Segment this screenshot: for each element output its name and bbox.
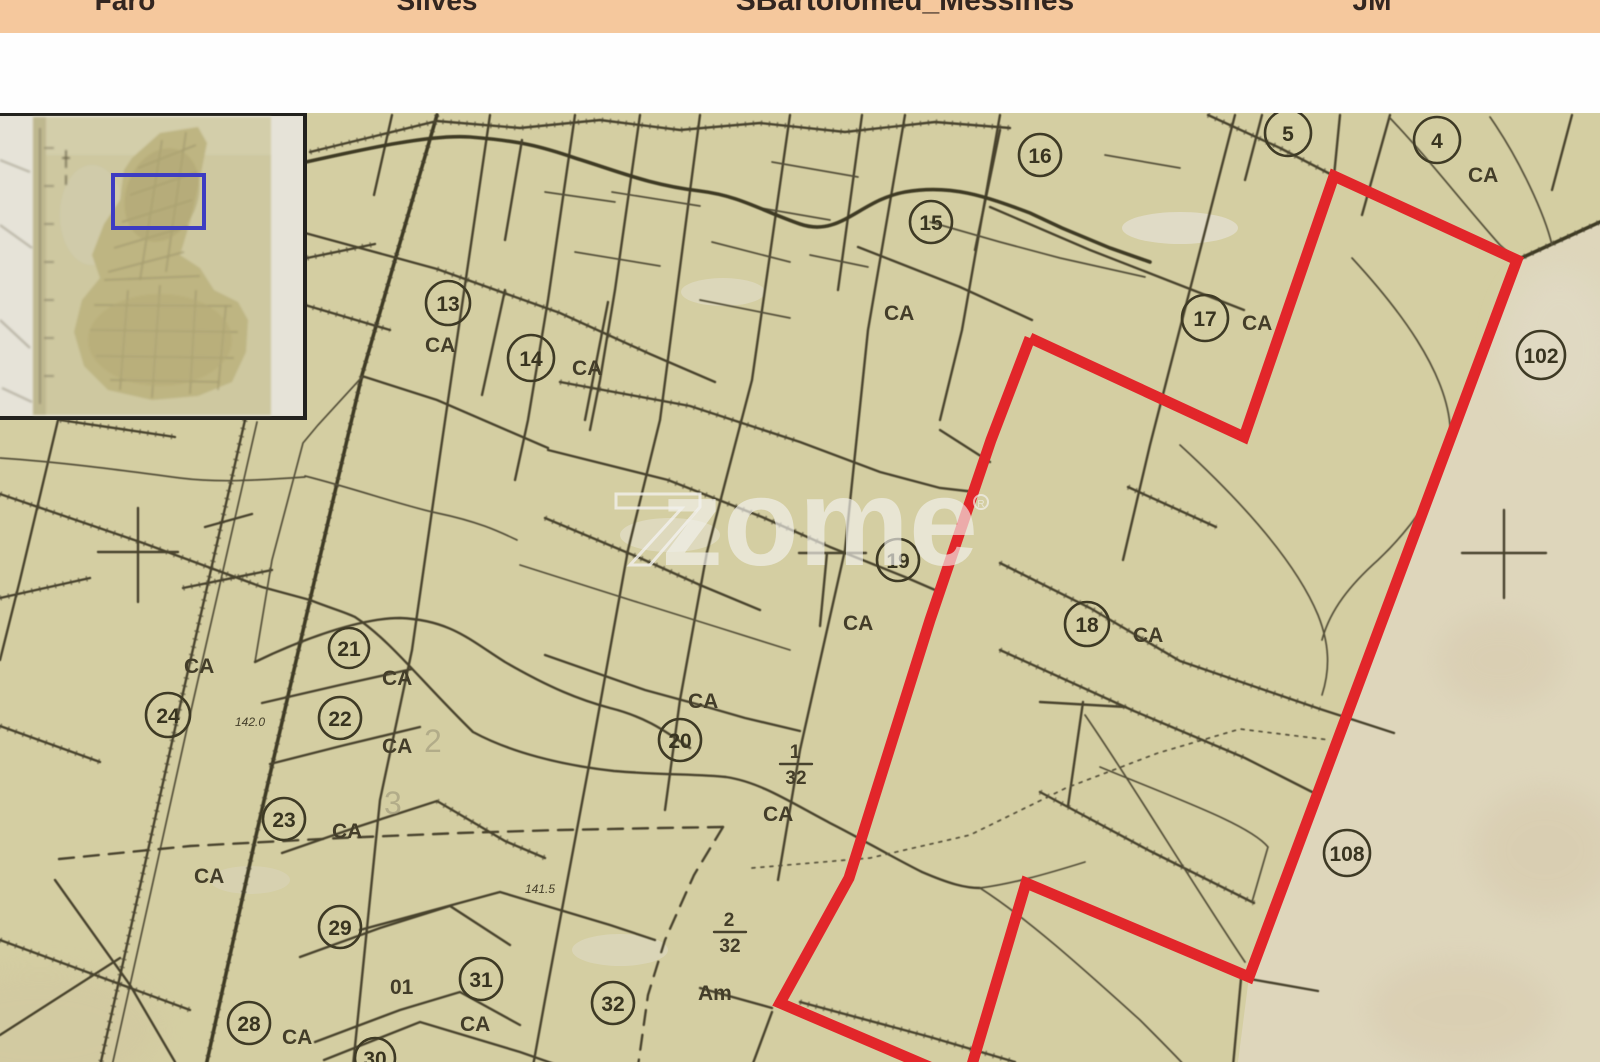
svg-text:Faro: Faro bbox=[95, 0, 156, 16]
svg-text:JM: JM bbox=[1353, 0, 1392, 16]
svg-text:SBartolomeu_Messines: SBartolomeu_Messines bbox=[736, 0, 1074, 17]
svg-text:Silves: Silves bbox=[397, 0, 478, 16]
